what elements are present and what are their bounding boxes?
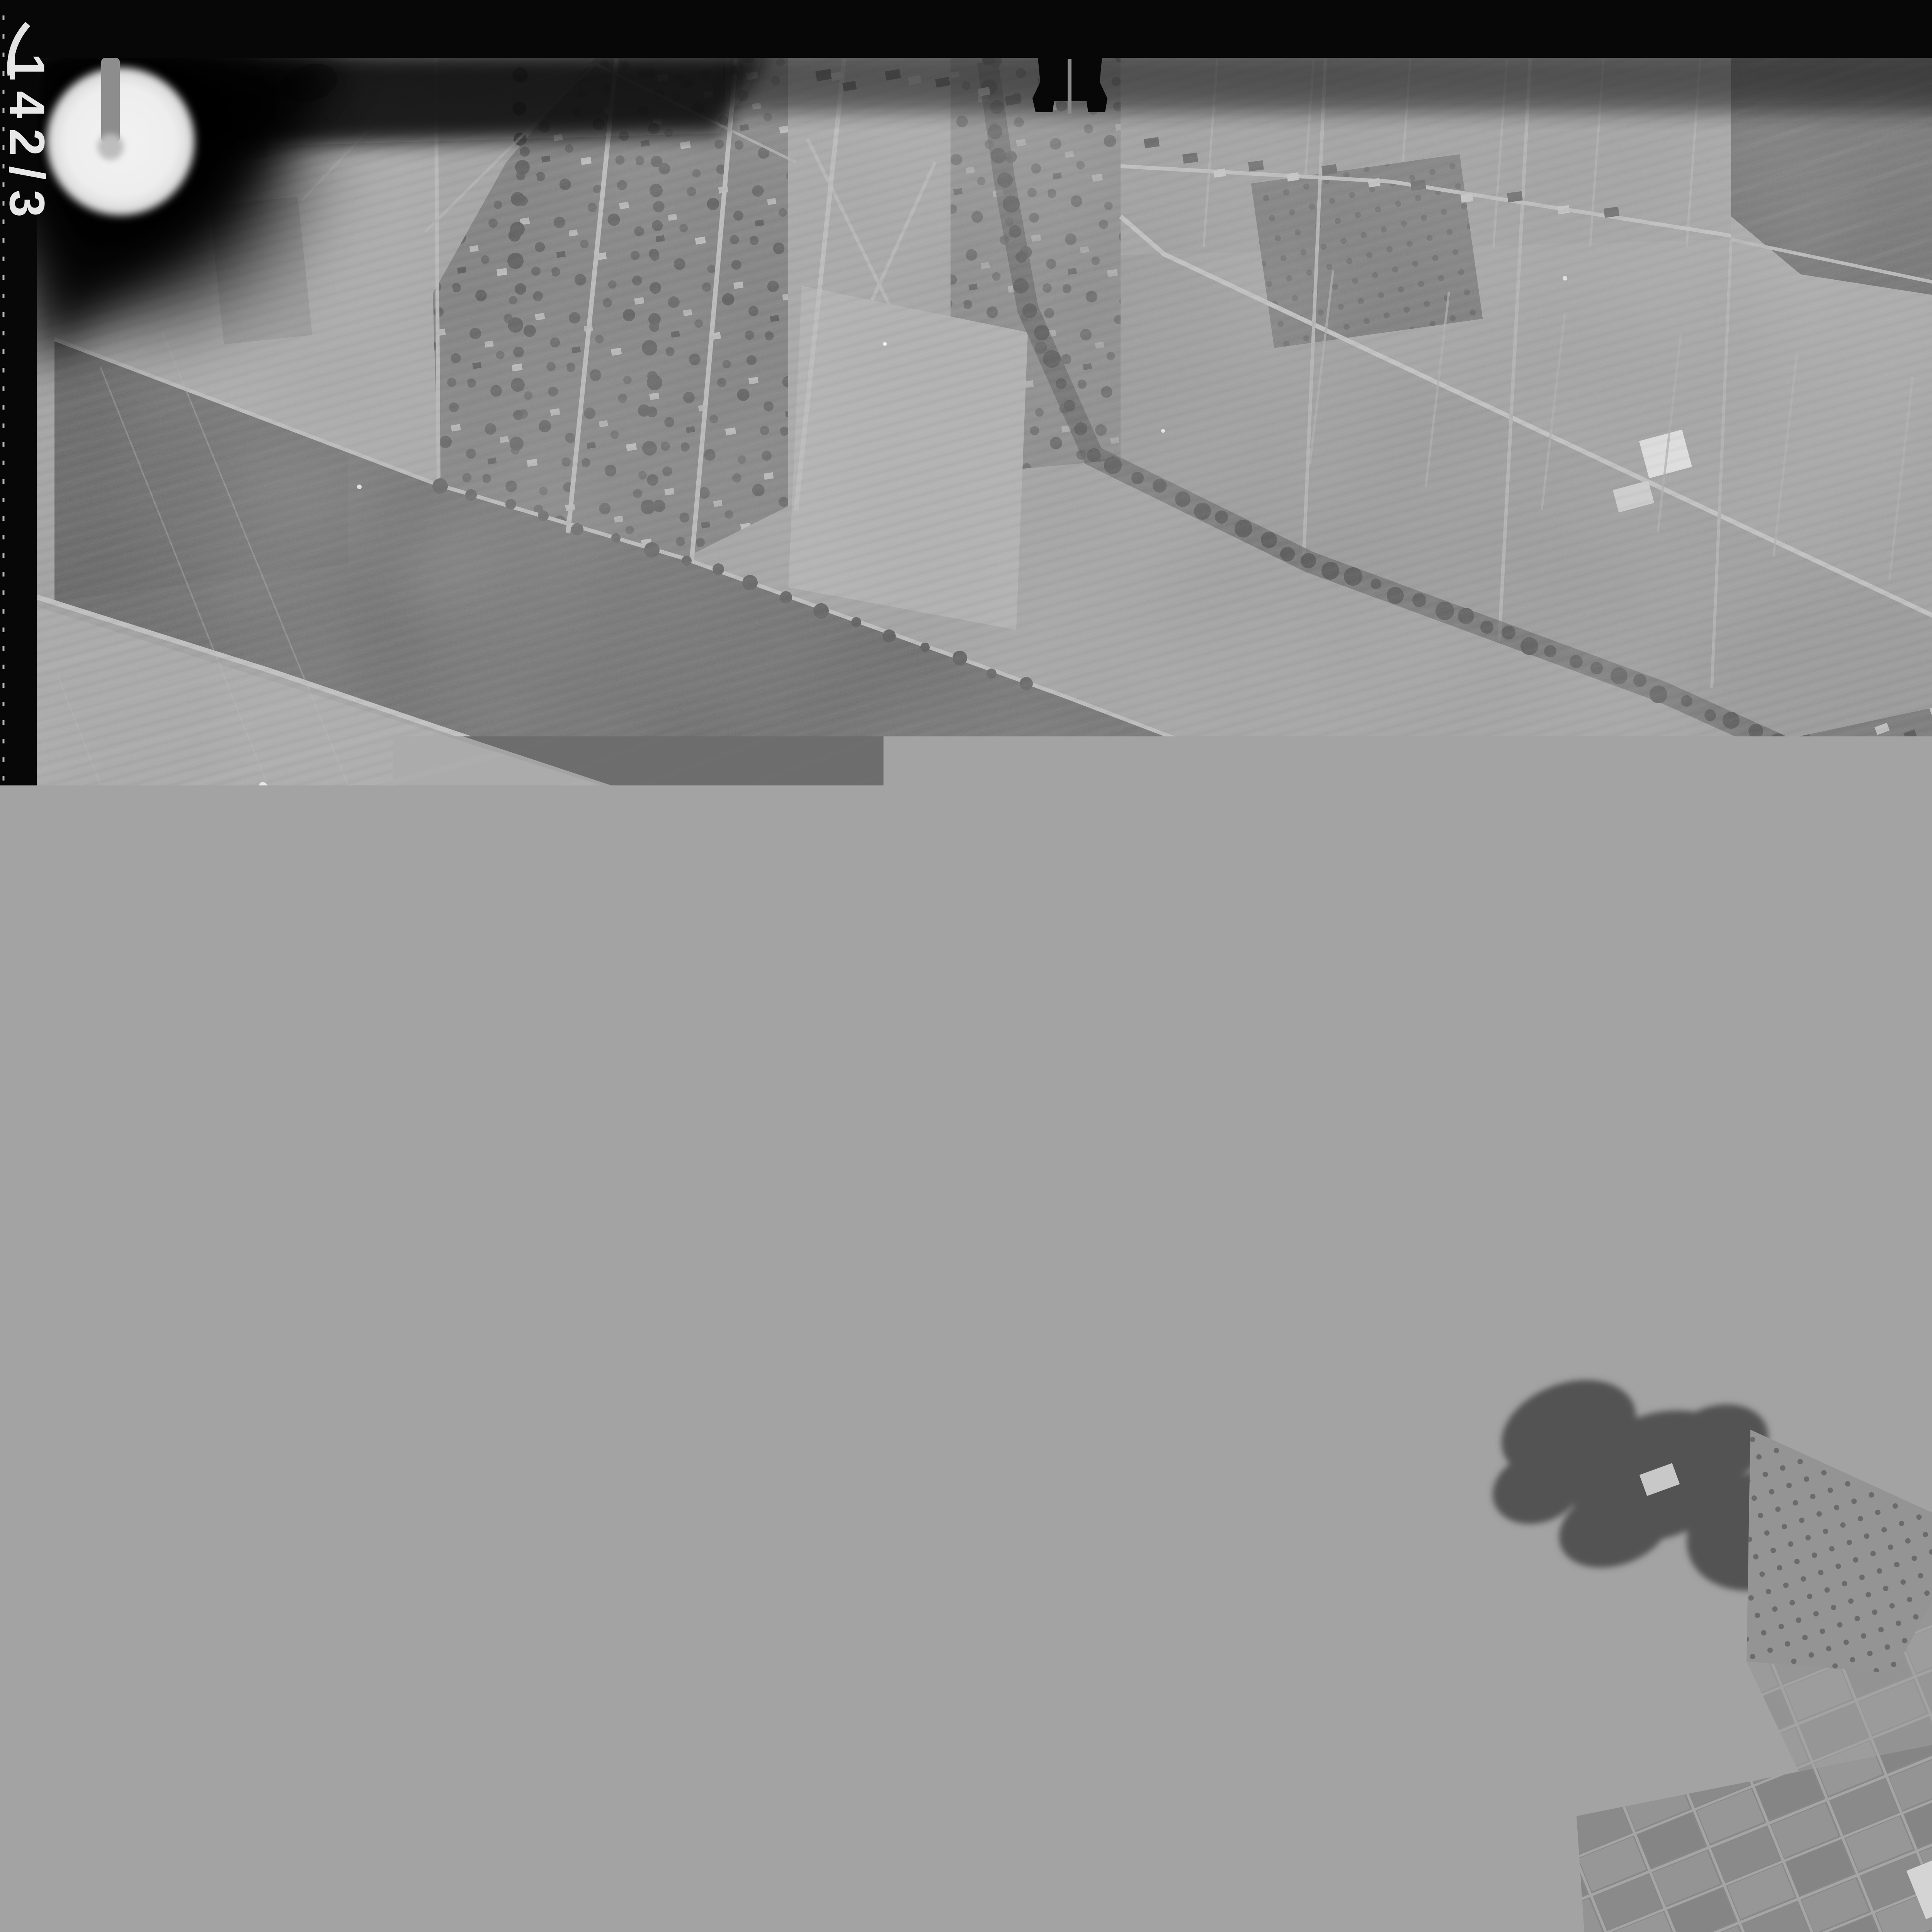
svg-text:142/3: 142/3 (0, 53, 54, 227)
